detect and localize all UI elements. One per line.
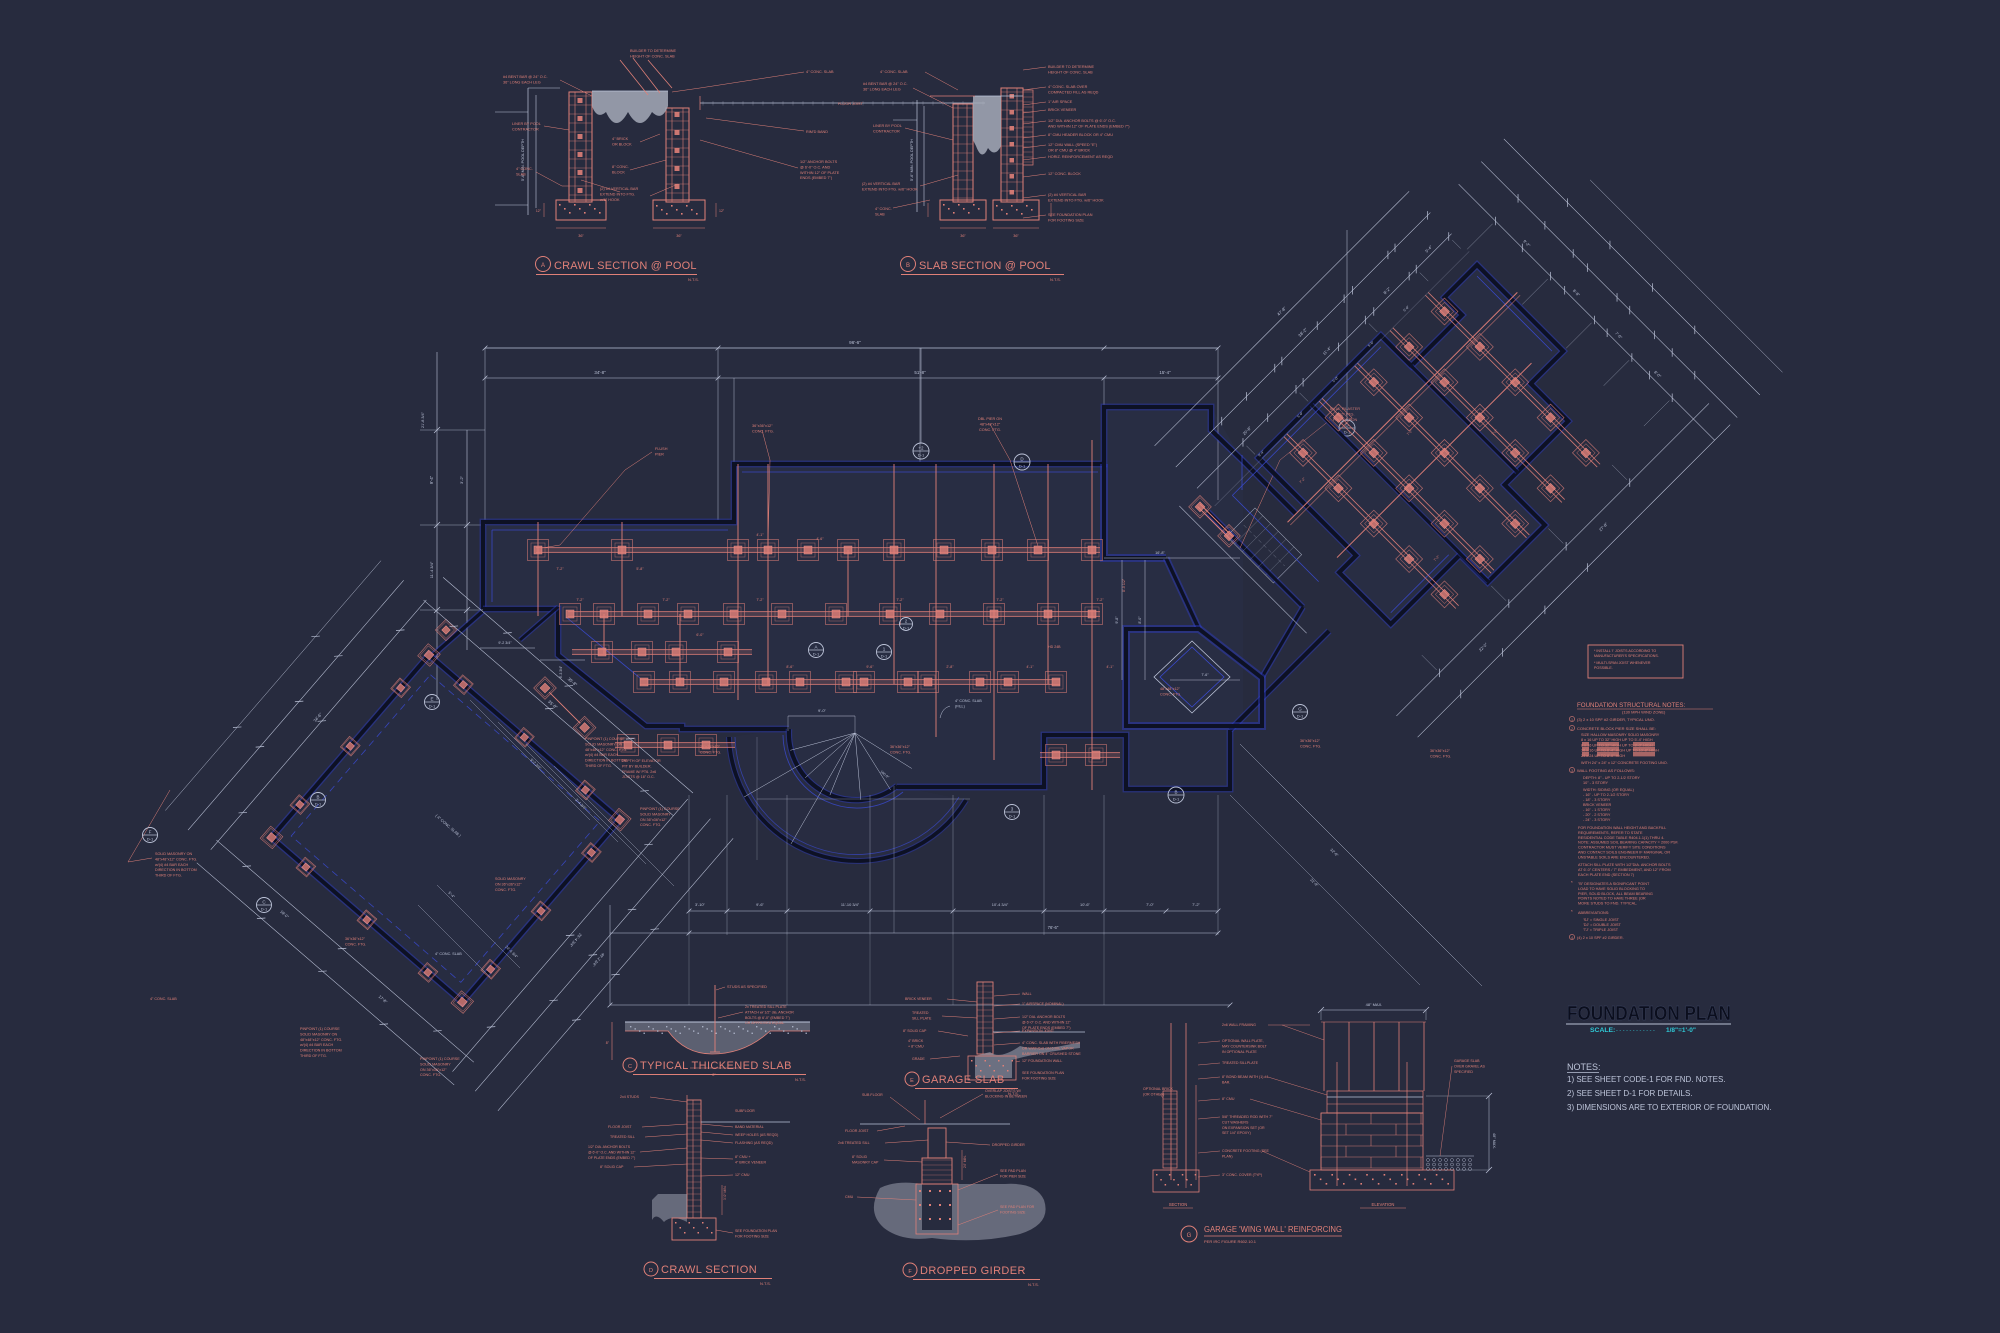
svg-text:8" SOLID: 8" SOLID (852, 1155, 867, 1159)
svg-text:GRADE: GRADE (912, 1057, 925, 1061)
svg-text:DIRECTION IN BOTTOM: DIRECTION IN BOTTOM (300, 1049, 342, 1053)
svg-text:w/(4) #4 BAR EACH: w/(4) #4 BAR EACH (155, 863, 189, 867)
svg-text:16'-8": 16'-8" (1155, 551, 1165, 555)
svg-text:WALL: WALL (1022, 992, 1032, 996)
svg-text:FOUNDATION PLAN: FOUNDATION PLAN (1567, 1003, 1731, 1025)
svg-text:BLOCKING IN BETWEEN: BLOCKING IN BETWEEN (985, 1094, 1027, 1098)
svg-text:36": 36" (676, 234, 682, 238)
svg-text:LINER BY POOL: LINER BY POOL (873, 124, 902, 128)
svg-text:E: E (430, 697, 433, 702)
svg-text:36" LONG EACH LEG: 36" LONG EACH LEG (503, 80, 541, 84)
svg-text:48"x48"x12" CONC. FTG.: 48"x48"x12" CONC. FTG. (155, 857, 197, 861)
svg-text:CONC. FTG.: CONC. FTG. (979, 428, 1001, 432)
svg-text:OPTIONAL WALL PLATE,: OPTIONAL WALL PLATE, (1222, 1039, 1264, 1043)
svg-text:CONTRACTOR: CONTRACTOR (873, 129, 900, 133)
svg-text:FOR FOOTING SIZE: FOR FOOTING SIZE (735, 1234, 770, 1238)
svg-text:4" BRICK VENEER: 4" BRICK VENEER (735, 1160, 766, 1164)
svg-text:3" CONC. COVER (TYP): 3" CONC. COVER (TYP) (1222, 1173, 1262, 1177)
svg-text:- 16" - 1 STORY: - 16" - 1 STORY (1583, 808, 1611, 812)
svg-text:FOR FOUNDATION WALL HEIGHT AND: FOR FOUNDATION WALL HEIGHT AND BACKFILL (1578, 826, 1666, 830)
svg-text:D-1: D-1 (261, 907, 268, 912)
svg-text:B: B (316, 795, 319, 800)
svg-text:FLUSH: FLUSH (655, 447, 668, 451)
svg-text:OPTIONAL BRICK: OPTIONAL BRICK (1143, 1087, 1174, 1091)
svg-text:@ 6'-0" O.C. AND WITHIN 12": @ 6'-0" O.C. AND WITHIN 12" (588, 1150, 636, 1154)
svg-text:4'-1": 4'-1" (1106, 665, 1114, 669)
svg-text:9'-6": 9'-6" (866, 665, 874, 669)
svg-text:D-1: D-1 (1297, 714, 1304, 719)
svg-text:EXTEND INTO FTG.: EXTEND INTO FTG. (600, 192, 635, 196)
svg-text:BRICK VENEER: BRICK VENEER (1048, 108, 1077, 112)
svg-text:36"x36"x12": 36"x36"x12" (752, 424, 773, 428)
svg-text:SIZE HALLOW MASONRY SO: SIZE HALLOW MASONRY SOLID MASONRY (1581, 733, 1660, 737)
svg-text:7'-2": 7'-2" (662, 598, 670, 602)
svg-text:SCALE:: SCALE: (1590, 1027, 1615, 1034)
svg-text:D-1: D-1 (903, 626, 910, 631)
svg-text:C: C (628, 1064, 632, 1070)
svg-text:A: A (541, 263, 545, 269)
svg-text:4'-1": 4'-1" (756, 533, 764, 537)
svg-text:SOLID MASONRY: SOLID MASONRY (640, 812, 671, 816)
svg-text:GARAGE 'WING WALL' REINFORCING: GARAGE 'WING WALL' REINFORCING (1204, 1224, 1342, 1234)
svg-text:9'-0": 9'-0" (818, 708, 827, 713)
svg-text:* MULTI-SPAN JOIST WHENEVER: * MULTI-SPAN JOIST WHENEVER (1594, 661, 1651, 665)
svg-text:EXPANSION JOINT: EXPANSION JOINT (1022, 1029, 1055, 1033)
svg-text:AND WITHIN 12" OF PLATE ENDS (: AND WITHIN 12" OF PLATE ENDS (EMBED 7") (1048, 124, 1130, 128)
svg-text:8" CMU: 8" CMU (1222, 1097, 1235, 1101)
svg-text:4" CONC. SLAB: 4" CONC. SLAB (806, 70, 834, 74)
svg-text:UNSTABLE SOILS ARE ENCOUNTERED: UNSTABLE SOILS ARE ENCOUNTERED. (1578, 855, 1650, 859)
svg-text:D-1: D-1 (429, 704, 436, 709)
svg-text:48"x48"x12" CONC. FTG.: 48"x48"x12" CONC. FTG. (585, 748, 627, 752)
svg-text:BAR.: BAR. (1222, 1080, 1230, 1084)
svg-text:DROPPED GIRDER: DROPPED GIRDER (920, 1265, 1026, 1277)
svg-text:12": 12" (719, 209, 725, 213)
svg-text:THIRD OF FTG.: THIRD OF FTG. (300, 1054, 327, 1058)
svg-text:TREATED: TREATED (912, 1011, 929, 1015)
svg-text:WITHIN 12" OF PLATE: WITHIN 12" OF PLATE (800, 171, 840, 175)
svg-text:ATTACH SILL PLATE WITH 1/2"DIA: ATTACH SILL PLATE WITH 1/2"DIA. ANCHOR B… (1578, 863, 1671, 867)
svg-text:RIM'D BAND: RIM'D BAND (806, 130, 828, 134)
svg-text:B: B (1174, 790, 1177, 795)
svg-text:FOR FOOTING SIZE: FOR FOOTING SIZE (1022, 1076, 1057, 1080)
svg-text:1/2" DIA. ANCHOR BOLTS @ 6'-0": 1/2" DIA. ANCHOR BOLTS @ 6'-0" O.C. (1048, 119, 1116, 123)
svg-text:NOTE: ASSUMED SOIL BEARING CAP: NOTE: ASSUMED SOIL BEARING CAPACITY = 20… (1578, 841, 1679, 845)
svg-text:GARAGE SLAB: GARAGE SLAB (922, 1074, 1005, 1086)
svg-text:2x6 WALL FRAMING: 2x6 WALL FRAMING (1222, 1023, 1256, 1027)
svg-text:SEE PAD PLAN: SEE PAD PLAN (1000, 1169, 1026, 1173)
svg-text:SOLID MASONRY: SOLID MASONRY (420, 1062, 451, 1066)
svg-text:8" SOLID CAP: 8" SOLID CAP (903, 1029, 927, 1033)
svg-text:(2) #4 VERTICAL BAR: (2) #4 VERTICAL BAR (862, 182, 900, 186)
svg-text:8'-0": 8'-0" (1138, 616, 1142, 624)
svg-text:FOR PIER SIZE: FOR PIER SIZE (1000, 1174, 1027, 1178)
svg-text:TREATED SILL: TREATED SILL (610, 1135, 635, 1139)
svg-text:SOLID MASONRY: SOLID MASONRY (495, 877, 526, 881)
svg-text:CONC. FTG.: CONC. FTG. (495, 888, 516, 892)
svg-text:OVER GRAVEL AS: OVER GRAVEL AS (1454, 1064, 1486, 1068)
svg-text:1/2" DIA. ANCHOR BOLTS: 1/2" DIA. ANCHOR BOLTS (1022, 1015, 1066, 1019)
svg-text:- 20" - 2 STORY: - 20" - 2 STORY (1583, 813, 1611, 817)
svg-text:CMU: CMU (845, 1195, 854, 1199)
svg-text:3) DIMENSIONS ARE TO EXTERIOR: 3) DIMENSIONS ARE TO EXTERIOR OF FOUNDAT… (1567, 1103, 1771, 1112)
svg-text:8" CMU HEADER BLOCK OR 4" CMU: 8" CMU HEADER BLOCK OR 4" CMU (1048, 133, 1113, 137)
svg-text:EXTEND INTO FTG. w/6" HOOK: EXTEND INTO FTG. w/6" HOOK (862, 187, 918, 191)
svg-text:3'-10": 3'-10" (695, 902, 706, 907)
svg-text:36"x36"x12": 36"x36"x12" (345, 937, 366, 941)
svg-text:3'-2": 3'-2" (459, 475, 464, 484)
svg-text:BRICK VENEER: BRICK VENEER (1583, 803, 1612, 807)
svg-text:FOOTING SIZE: FOOTING SIZE (1000, 1210, 1026, 1214)
svg-text:12" CMU WALL (SPEED "E"): 12" CMU WALL (SPEED "E") (1048, 143, 1098, 147)
svg-text:AND CONTACT SOILS ENGINEER IF: AND CONTACT SOILS ENGINEER IF MARGINAL O… (1578, 851, 1670, 855)
svg-text:CONC. FTG.: CONC. FTG. (420, 1073, 441, 1077)
svg-text:MANUFACTURER'S SPECIFICATIONS.: MANUFACTURER'S SPECIFICATIONS. (1594, 654, 1659, 658)
svg-text:'DJ' = DOUBLE JOIST: 'DJ' = DOUBLE JOIST (1583, 923, 1622, 927)
svg-text:15'-4": 15'-4" (1159, 370, 1171, 375)
svg-text:7'-2": 7'-2" (1192, 902, 1200, 907)
svg-text:1: 1 (1571, 718, 1573, 722)
svg-text:34'-8": 34'-8" (594, 370, 606, 375)
svg-text:2x4 STUDS: 2x4 STUDS (620, 1095, 640, 1099)
svg-text:2) SEE SHEET D-1 FOR DETAILS.: 2) SEE SHEET D-1 FOR DETAILS. (1567, 1089, 1693, 1098)
svg-text:11'-4 3/4": 11'-4 3/4" (429, 561, 434, 578)
svg-text:EACH PLATE END (SECTION 7): EACH PLATE END (SECTION 7) (1578, 873, 1635, 877)
svg-text:4" CONC.: 4" CONC. (516, 167, 533, 171)
svg-text:#4 BENT BAR @ 24" O.C.: #4 BENT BAR @ 24" O.C. (503, 75, 548, 79)
svg-text:MAY COUNTERSINK BOLT: MAY COUNTERSINK BOLT (1222, 1044, 1268, 1048)
svg-text:PINPOINT (1) COURSE: PINPOINT (1) COURSE (300, 1027, 340, 1031)
svg-text:D-1: D-1 (1019, 464, 1026, 469)
svg-text:5'-6" MIN. POOL DEPTH: 5'-6" MIN. POOL DEPTH (910, 139, 914, 181)
svg-text:BAND MATERIAL: BAND MATERIAL (735, 1125, 764, 1129)
svg-text:11'-10 3/4": 11'-10 3/4" (841, 902, 860, 907)
svg-text:CONC. FTG.: CONC. FTG. (700, 750, 721, 754)
svg-text:CUT WASHERS: CUT WASHERS (1222, 1120, 1249, 1124)
svg-text:D-1: D-1 (1173, 797, 1180, 802)
svg-text:9'-8": 9'-8" (1115, 616, 1119, 624)
svg-text:36": 36" (578, 234, 584, 238)
svg-text:SILL PLATE: SILL PLATE (912, 1016, 932, 1020)
svg-text:8'-0 1/2": 8'-0 1/2" (1122, 578, 1126, 592)
svg-text:F: F (149, 830, 152, 835)
svg-text:7'-2": 7'-2" (756, 598, 764, 602)
svg-text:WEEP HOLES (AS REQD): WEEP HOLES (AS REQD) (735, 1133, 778, 1137)
svg-text:36": 36" (1013, 234, 1019, 238)
svg-text:HEIGHT OF CONC. SLAB: HEIGHT OF CONC. SLAB (1048, 70, 1093, 74)
svg-text:D-1: D-1 (881, 654, 888, 659)
svg-text:SOLID MASONRY ON: SOLID MASONRY ON (300, 1032, 337, 1036)
svg-text:8 x 16 UP TO 32" HIGH: 8 x 16 UP TO 32" HIGH UP TO 5'-4" HIGH (1581, 738, 1653, 742)
svg-text:24" MIN.: 24" MIN. (963, 1155, 967, 1168)
svg-text:w/(4) #4 BAR EACH: w/(4) #4 BAR EACH (300, 1043, 334, 1047)
svg-text:D-1: D-1 (1009, 814, 1016, 819)
svg-text:DEPTH OF ELEVATOR: DEPTH OF ELEVATOR (622, 759, 661, 763)
svg-text:N.T.S.: N.T.S. (760, 1281, 771, 1286)
svg-text:12" FOUNDATION WALL: 12" FOUNDATION WALL (1022, 1059, 1062, 1063)
svg-text:ABBREVIATIONS:: ABBREVIATIONS: (1578, 911, 1609, 915)
svg-text:1/2" ANCHOR BOLTS: 1/2" ANCHOR BOLTS (800, 160, 838, 164)
svg-text:8" BOND BEAM WITH (1) #4: 8" BOND BEAM WITH (1) #4 (1222, 1075, 1268, 1079)
svg-text:PER IRC FIGURE R602.10.1: PER IRC FIGURE R602.10.1 (1204, 1239, 1257, 1244)
svg-text:WIDTH: SIDING (OR EQUAL): WIDTH: SIDING (OR EQUAL) (1583, 788, 1635, 792)
svg-text:96'-6": 96'-6" (849, 340, 861, 345)
svg-text:SEE FOUNDATION PLAN: SEE FOUNDATION PLAN (735, 1229, 777, 1233)
svg-text:BUILDER TO DETERMINE: BUILDER TO DETERMINE (1048, 65, 1095, 69)
svg-text:WALL FOOTING AS FOLLOWS:: WALL FOOTING AS FOLLOWS: (1577, 768, 1635, 773)
svg-text:G: G (1187, 1233, 1192, 1239)
svg-text:@ 6'-0" O.C. AND WITHIN 12": @ 6'-0" O.C. AND WITHIN 12" (1022, 1020, 1071, 1024)
svg-text:(2) #4 VERTICAL BAR: (2) #4 VERTICAL BAR (1048, 193, 1086, 197)
svg-text:FOR FOOTING SIZE: FOR FOOTING SIZE (1048, 218, 1084, 222)
svg-text:7'-2": 7'-2" (556, 567, 564, 571)
svg-text:FLASHING (AS REQD): FLASHING (AS REQD) (735, 1141, 773, 1145)
svg-text:36" LONG EACH LEG: 36" LONG EACH LEG (863, 87, 901, 91)
svg-text:CONC. FTG.: CONC. FTG. (1300, 744, 1321, 748)
svg-text:PINPOINT (1) COURSE: PINPOINT (1) COURSE (420, 1057, 460, 1061)
svg-text:36"x36"x12": 36"x36"x12" (700, 745, 721, 749)
svg-text:- - - - - - - - - - - -: - - - - - - - - - - - - (1616, 1028, 1655, 1034)
svg-text:STUDS AS SPECIFIED: STUDS AS SPECIFIED (727, 985, 767, 989)
svg-text:BARRIER ON 4" CRUSHED STONE: BARRIER ON 4" CRUSHED STONE (1022, 1052, 1081, 1056)
svg-text:8" CONC.: 8" CONC. (612, 165, 629, 169)
svg-text:THIRD OF FTG.: THIRD OF FTG. (155, 874, 182, 878)
svg-text:2x6 TREATED SILL: 2x6 TREATED SILL (838, 1141, 870, 1145)
svg-text:CONTRACTOR: CONTRACTOR (512, 127, 539, 131)
svg-text:IN OPTIONAL PLATE: IN OPTIONAL PLATE (1222, 1050, 1257, 1054)
svg-text:N.T.S.: N.T.S. (1050, 277, 1061, 282)
svg-text:48" MAX.: 48" MAX. (1492, 1133, 1496, 1149)
svg-text:ATTACH w/ 1/2" dia. ANCHOR: ATTACH w/ 1/2" dia. ANCHOR (745, 1010, 794, 1014)
svg-text:2x TREATED SILL PLATE: 2x TREATED SILL PLATE (745, 1005, 787, 1009)
svg-text:36": 36" (960, 234, 966, 238)
svg-text:10" - 3 STORY: 10" - 3 STORY (1583, 781, 1609, 785)
svg-text:D-1: D-1 (315, 802, 322, 807)
svg-text:ON 36"x36"x12": ON 36"x36"x12" (640, 818, 667, 822)
svg-text:SET 1/4" EPOXY): SET 1/4" EPOXY) (1222, 1131, 1251, 1135)
svg-text:ON EXPANSION SET (OR: ON EXPANSION SET (OR (1222, 1126, 1265, 1130)
svg-text:DIRECTION IN BOTTOM: DIRECTION IN BOTTOM (585, 759, 627, 763)
svg-text:FLOOR JOIST: FLOOR JOIST (845, 1129, 869, 1133)
svg-text:MORE STUDS TO FND. TYPICAL.: MORE STUDS TO FND. TYPICAL. (1578, 902, 1637, 906)
svg-text:10'-6": 10'-6" (1080, 902, 1091, 907)
svg-text:'TJ' = TRIPLE JOIST: 'TJ' = TRIPLE JOIST (1583, 928, 1619, 932)
svg-text:G: G (1298, 707, 1302, 712)
svg-text:PIER, SOLID BLOCK, ALL BEAM BE: PIER, SOLID BLOCK, ALL BEAM BEARING (1578, 892, 1653, 896)
svg-text:ELEVATION: ELEVATION (1372, 1202, 1395, 1207)
svg-text:SEE PAD PLAN FOR: SEE PAD PLAN FOR (1000, 1205, 1035, 1209)
svg-text:REQUIREMENTS, REFER TO STATE: REQUIREMENTS, REFER TO STATE (1578, 831, 1643, 835)
svg-text:48"x48"x12" CONC. FTG.: 48"x48"x12" CONC. FTG. (300, 1038, 342, 1042)
svg-text:CONC. FTG.: CONC. FTG. (1430, 754, 1451, 758)
svg-text:8" SOLID CAP: 8" SOLID CAP (600, 1165, 624, 1169)
svg-text:DIRECTION IN BOTTOM: DIRECTION IN BOTTOM (155, 868, 197, 872)
svg-text:SPECIFIED: SPECIFIED (1454, 1070, 1473, 1074)
svg-text:EXTEND INTO FTG. w/6" HOOK: EXTEND INTO FTG. w/6" HOOK (1048, 198, 1104, 202)
svg-text:4" CONC. SLAB WITH FIBERMESH: 4" CONC. SLAB WITH FIBERMESH (1022, 1041, 1081, 1045)
svg-text:7'-2": 7'-2" (576, 598, 584, 602)
svg-text:CONC. FTG.: CONC. FTG. (1160, 692, 1181, 696)
svg-text:PINPOINT (1) COURSE: PINPOINT (1) COURSE (585, 737, 625, 741)
svg-text:SOLID MASONRY ON: SOLID MASONRY ON (155, 852, 192, 856)
svg-text:@ 6'-0" O.C. AND: @ 6'-0" O.C. AND (800, 165, 830, 169)
svg-text:3'-0" MIN.: 3'-0" MIN. (723, 1185, 727, 1200)
svg-text:w/6" HOOK: w/6" HOOK (600, 198, 620, 202)
svg-text:'SJ' = SINGLE JOIST: 'SJ' = SINGLE JOIST (1583, 918, 1620, 922)
svg-text:+ 8" CMU: + 8" CMU (908, 1044, 924, 1048)
svg-text:- 24" - 3 STORY: - 24" - 3 STORY (1583, 818, 1611, 822)
svg-text:7'-2": 7'-2" (896, 598, 904, 602)
svg-text:48"x48"x12": 48"x48"x12" (1160, 687, 1181, 691)
svg-text:5/8" THREADED ROD WITH 7": 5/8" THREADED ROD WITH 7" (1222, 1115, 1273, 1119)
svg-text:WITH 24" x 24" x 12" CONCRETE: WITH 24" x 24" x 12" CONCRETE FOOTING UN… (1581, 761, 1668, 765)
svg-text:12": 12" (536, 209, 542, 213)
svg-text:HEIGHT OF CONC. SLAB: HEIGHT OF CONC. SLAB (630, 54, 675, 58)
svg-text:4" BRICK: 4" BRICK (612, 137, 629, 141)
svg-text:36"x36"x12": 36"x36"x12" (1300, 739, 1321, 743)
svg-text:PLAN): PLAN) (1222, 1154, 1233, 1158)
svg-text:36"x36"x12": 36"x36"x12" (890, 745, 911, 749)
svg-text:SLAB: SLAB (516, 172, 526, 176)
svg-text:"B" DESIGNATES A SIGNIFICANT P: "B" DESIGNATES A SIGNIFICANT POINT (1578, 882, 1650, 886)
svg-text:4" CONC. SLAB OVER: 4" CONC. SLAB OVER (1048, 85, 1088, 89)
svg-text:(4) 2 x 10 SPF #2 GIRDER.: (4) 2 x 10 SPF #2 GIRDER. (1577, 936, 1624, 940)
svg-text:GARAGE SLAB: GARAGE SLAB (1454, 1059, 1480, 1063)
svg-text:*: * (1571, 880, 1573, 885)
svg-text:4" CONC. SLAB: 4" CONC. SLAB (435, 952, 462, 956)
svg-text:BLOCK: BLOCK (612, 170, 625, 174)
svg-text:9'-6": 9'-6" (756, 902, 764, 907)
svg-text:5'-8": 5'-8" (636, 567, 644, 571)
svg-text:THIRD OF FTG.: THIRD OF FTG. (585, 764, 612, 768)
svg-text:POSSIBLE.: POSSIBLE. (1594, 666, 1613, 670)
svg-text:NOTES:: NOTES: (1567, 1062, 1601, 1072)
svg-text:ON 36"x36"x12": ON 36"x36"x12" (420, 1068, 447, 1072)
svg-text:A: A (814, 645, 817, 650)
svg-text:SUBFLOOR: SUBFLOOR (735, 1109, 755, 1113)
svg-text:DBL PIER ON: DBL PIER ON (978, 417, 1002, 421)
svg-text:OR BLOCK: OR BLOCK (612, 142, 632, 146)
svg-text:(130 MPH WIND ZONE): (130 MPH WIND ZONE) (1622, 710, 1666, 715)
svg-text:CRAWL SECTION: CRAWL SECTION (661, 1264, 757, 1276)
svg-text:4" CONC. SLAB: 4" CONC. SLAB (955, 699, 982, 703)
svg-text:12" CONC. BLOCK: 12" CONC. BLOCK (1048, 172, 1081, 176)
svg-text:OR WWF/6x6 ON 6 MIL VAPOR: OR WWF/6x6 ON 6 MIL VAPOR (1022, 1046, 1074, 1050)
svg-text:w/(4) #4 BAR EACH: w/(4) #4 BAR EACH (585, 753, 619, 757)
svg-text:7'-2": 7'-2" (1096, 598, 1104, 602)
svg-text:CRAWL SECTION @ POOL: CRAWL SECTION @ POOL (554, 260, 697, 272)
svg-text:4" CONC. SLAB: 4" CONC. SLAB (880, 70, 908, 74)
svg-text:1" AIRSPACE (NOMINAL): 1" AIRSPACE (NOMINAL) (1022, 1002, 1064, 1006)
svg-text:SUB FLOOR: SUB FLOOR (862, 1093, 883, 1097)
svg-text:1/8"=1'-0": 1/8"=1'-0" (1666, 1027, 1696, 1034)
svg-text:36"x36"x12": 36"x36"x12" (1430, 749, 1451, 753)
svg-text:MASONRY CAP: MASONRY CAP (852, 1160, 879, 1164)
svg-text:SLAB SECTION @ POOL: SLAB SECTION @ POOL (919, 260, 1051, 272)
svg-text:RESIDENTIAL CODE TABLE R404.1.: RESIDENTIAL CODE TABLE R404.1.1(1) THRU … (1578, 836, 1664, 840)
svg-text:2'-8": 2'-8" (946, 665, 954, 669)
svg-text:D-1: D-1 (147, 837, 154, 842)
svg-text:D: D (649, 1268, 653, 1274)
svg-text:4" BRICK: 4" BRICK (908, 1039, 924, 1043)
svg-text:TREATED SILLPLATE: TREATED SILLPLATE (1222, 1061, 1259, 1065)
svg-text:LINER BY POOL: LINER BY POOL (512, 122, 541, 126)
svg-text:1" AIR SPACE: 1" AIR SPACE (1048, 100, 1073, 104)
svg-text:BUILDER TO DETERMINE: BUILDER TO DETERMINE (630, 49, 677, 53)
svg-text:CONCRETE BLOCK PIER SIZE SHALL: CONCRETE BLOCK PIER SIZE SHALL BE: (1577, 726, 1656, 731)
svg-text:9'-4": 9'-4" (429, 475, 434, 484)
svg-text:9'-2 3/4": 9'-2 3/4" (498, 641, 512, 645)
svg-text:PIT BY BUILDER.: PIT BY BUILDER. (622, 764, 652, 768)
svg-text:1) SEE SHEET CODE-1 FOR FND.: 1) SEE SHEET CODE-1 FOR FND. NOTES. (1567, 1075, 1726, 1084)
svg-text:DEPTH: 8" - UP TO 2-1/2 STOR: DEPTH: 8" - UP TO 2-1/2 STORY (1583, 776, 1640, 780)
svg-text:12" CMU: 12" CMU (735, 1173, 750, 1177)
svg-text:HORIZ. REINFORCEMENT AS REQD: HORIZ. REINFORCEMENT AS REQD (1048, 155, 1113, 159)
svg-text:SOLID MASONRY ON: SOLID MASONRY ON (585, 742, 622, 746)
svg-text:BRICK VENEER: BRICK VENEER (905, 997, 932, 1001)
svg-text:SECTION: SECTION (1169, 1202, 1188, 1207)
svg-text:CONTRACTOR MUST VERIFY SITE CO: CONTRACTOR MUST VERIFY SITE CONDITIONS (1578, 846, 1666, 850)
svg-text:48" MAX.: 48" MAX. (1366, 1002, 1383, 1007)
svg-text:8'-6": 8'-6" (786, 665, 794, 669)
svg-text:OVERLAP JOISTS W/: OVERLAP JOISTS W/ (985, 1089, 1021, 1093)
svg-text:D-1: D-1 (813, 652, 820, 657)
svg-text:8" CMU +: 8" CMU + (735, 1155, 751, 1159)
svg-text:ENDS (EMBED 7"): ENDS (EMBED 7") (800, 176, 833, 180)
svg-text:POINTS NOTED TO HAVE THREE (OR: POINTS NOTED TO HAVE THREE (OR (1578, 897, 1646, 901)
svg-text:OR 8" CMU @ 4" BRICK: OR 8" CMU @ 4" BRICK (1048, 148, 1090, 152)
svg-text:CONC. FTG.: CONC. FTG. (640, 823, 661, 827)
svg-text:+2: +2 (918, 446, 924, 451)
svg-text:HD 24B: HD 24B (1048, 645, 1061, 649)
svg-text:OF PLATE ENDS (EMBED 7"): OF PLATE ENDS (EMBED 7") (588, 1156, 635, 1160)
svg-text:TYPICAL THICKENED SLAB: TYPICAL THICKENED SLAB (640, 1060, 792, 1072)
svg-text:OR APPROVED EQUAL: OR APPROVED EQUAL (745, 1021, 784, 1025)
svg-text:4" CONC. SLAB: 4" CONC. SLAB (150, 997, 177, 1001)
svg-text:FLOOR JOIST: FLOOR JOIST (838, 102, 864, 106)
svg-text:7'-2": 7'-2" (996, 598, 1004, 602)
svg-text:ON 36"x36"x12": ON 36"x36"x12" (495, 882, 522, 886)
svg-text:FOUNDATION STRUCTURAL NOTES:: FOUNDATION STRUCTURAL NOTES: (1577, 702, 1686, 709)
svg-text:FLOOR JOIST: FLOOR JOIST (608, 1125, 632, 1129)
svg-text:#4 BENT BAR @ 24" O.C.: #4 BENT BAR @ 24" O.C. (863, 82, 908, 86)
svg-text:D-1: D-1 (918, 453, 925, 458)
svg-text:FRAME W/ PT6. 2x6: FRAME W/ PT6. 2x6 (622, 770, 656, 774)
svg-text:PIER: PIER (655, 452, 664, 456)
svg-text:(3) 2 x 10 SPF #2 GIRDER, TYPI: (3) 2 x 10 SPF #2 GIRDER, TYPICAL UNO. (1577, 717, 1655, 722)
svg-text:N.T.S.: N.T.S. (795, 1077, 806, 1082)
svg-text:- 18" - 3 STORY: - 18" - 3 STORY (1583, 798, 1611, 802)
svg-text:SEE FOUNDATION PLAN: SEE FOUNDATION PLAN (1048, 213, 1093, 217)
svg-text:4" CONC.: 4" CONC. (875, 207, 892, 211)
svg-text:- 16" - UP TO 2-1/2 STORY: - 16" - UP TO 2-1/2 STORY (1583, 793, 1630, 797)
svg-text:CONC. FTG.: CONC. FTG. (345, 942, 366, 946)
svg-text:4'-3 3/4": 4'-3 3/4" (559, 665, 563, 678)
svg-text:10'-4 3/4": 10'-4 3/4" (992, 902, 1009, 907)
svg-text:7'-6": 7'-6" (1201, 673, 1209, 677)
svg-text:* INSTALL 'I' JOISTS ACCORDIN: * INSTALL 'I' JOISTS ACCORDING TO (1594, 649, 1656, 653)
svg-text:LOAD TO HAVE SOLID BLOCKING TO: LOAD TO HAVE SOLID BLOCKING TO (1578, 887, 1645, 891)
svg-text:BOLTS @ 6'-0" (EMBED 7"): BOLTS @ 6'-0" (EMBED 7") (745, 1016, 790, 1020)
svg-text:76'-6": 76'-6" (1048, 925, 1059, 930)
svg-text:AT 6'-0" CENTERS / 7" EMBEDMEN: AT 6'-0" CENTERS / 7" EMBEDMENT, AND 12"… (1578, 868, 1671, 872)
svg-text:4'-1": 4'-1" (1026, 665, 1034, 669)
svg-text:6'-0": 6'-0" (696, 633, 704, 637)
svg-text:7'-0": 7'-0" (1146, 902, 1154, 907)
svg-text:1/2" DIA. ANCHOR BOLTS: 1/2" DIA. ANCHOR BOLTS (588, 1145, 631, 1149)
svg-text:4'-6": 4'-6" (816, 537, 824, 541)
svg-text:*: * (1571, 909, 1573, 914)
